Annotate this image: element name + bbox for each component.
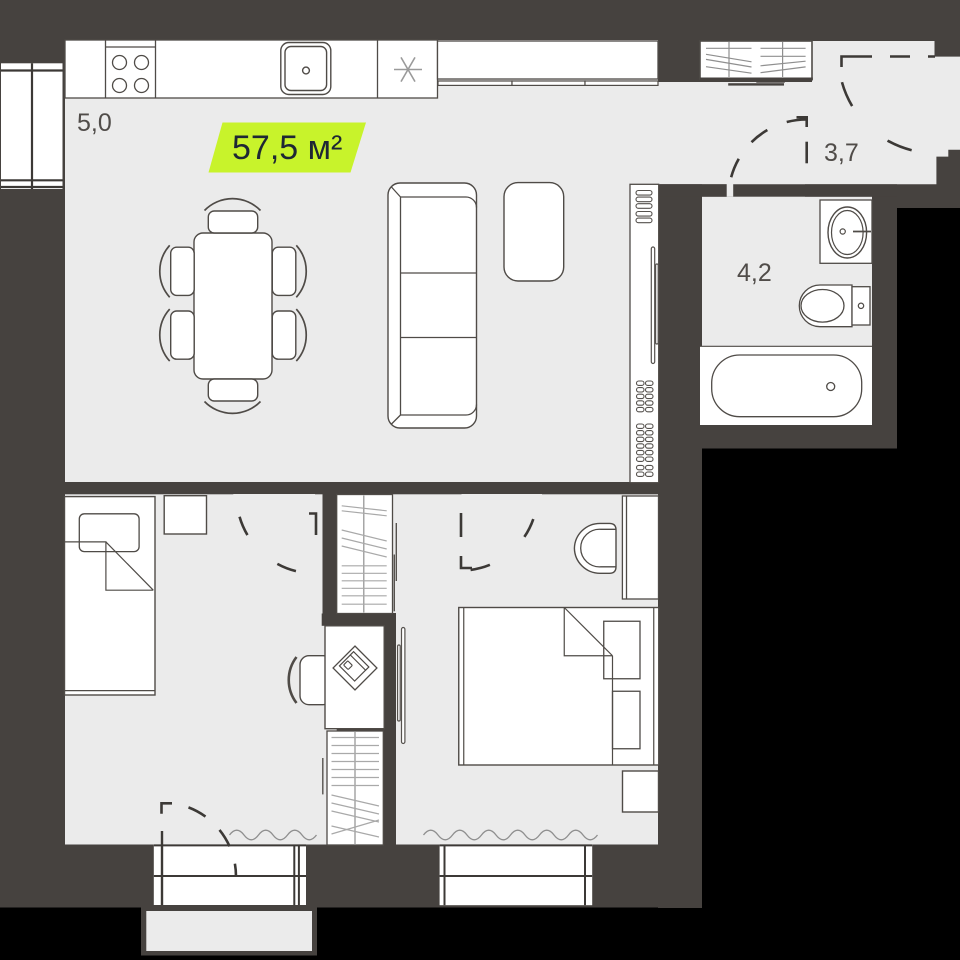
svg-text:3,7: 3,7 (824, 139, 859, 167)
svg-text:5,0: 5,0 (77, 109, 112, 137)
svg-text:4,2: 4,2 (737, 259, 772, 287)
svg-text:57,5 м²: 57,5 м² (232, 129, 342, 167)
